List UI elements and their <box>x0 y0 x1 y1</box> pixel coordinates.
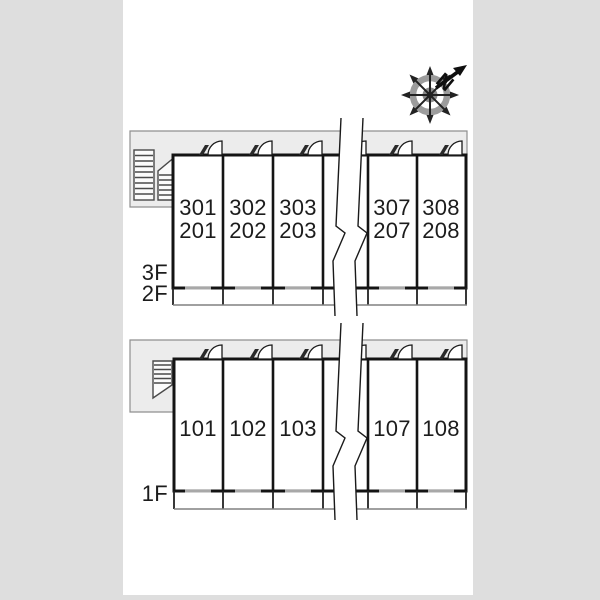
room-label-103: 103 <box>273 417 323 440</box>
room-label-107: 107 <box>367 417 417 440</box>
room-label-303-203: 303203 <box>273 196 323 242</box>
floor-label-2f: 2F <box>133 282 168 305</box>
room-label-308-208: 308208 <box>416 196 466 242</box>
floor-label-1f: 1F <box>133 482 168 505</box>
room-label-301-201: 301201 <box>173 196 223 242</box>
page-background: N 3F 2F 1F 301201 302202 303203 307207 3… <box>0 0 600 600</box>
room-label-302-202: 302202 <box>223 196 273 242</box>
compass-icon: N <box>401 65 467 124</box>
room-label-307-207: 307207 <box>367 196 417 242</box>
lower-balcony <box>174 491 467 509</box>
room-label-108: 108 <box>416 417 466 440</box>
room-label-102: 102 <box>223 417 273 440</box>
upper-balcony <box>173 288 467 305</box>
floor-plan-panel: N 3F 2F 1F 301201 302202 303203 307207 3… <box>123 0 473 595</box>
room-label-101: 101 <box>173 417 223 440</box>
floor-plan-drawing: N <box>123 0 473 595</box>
